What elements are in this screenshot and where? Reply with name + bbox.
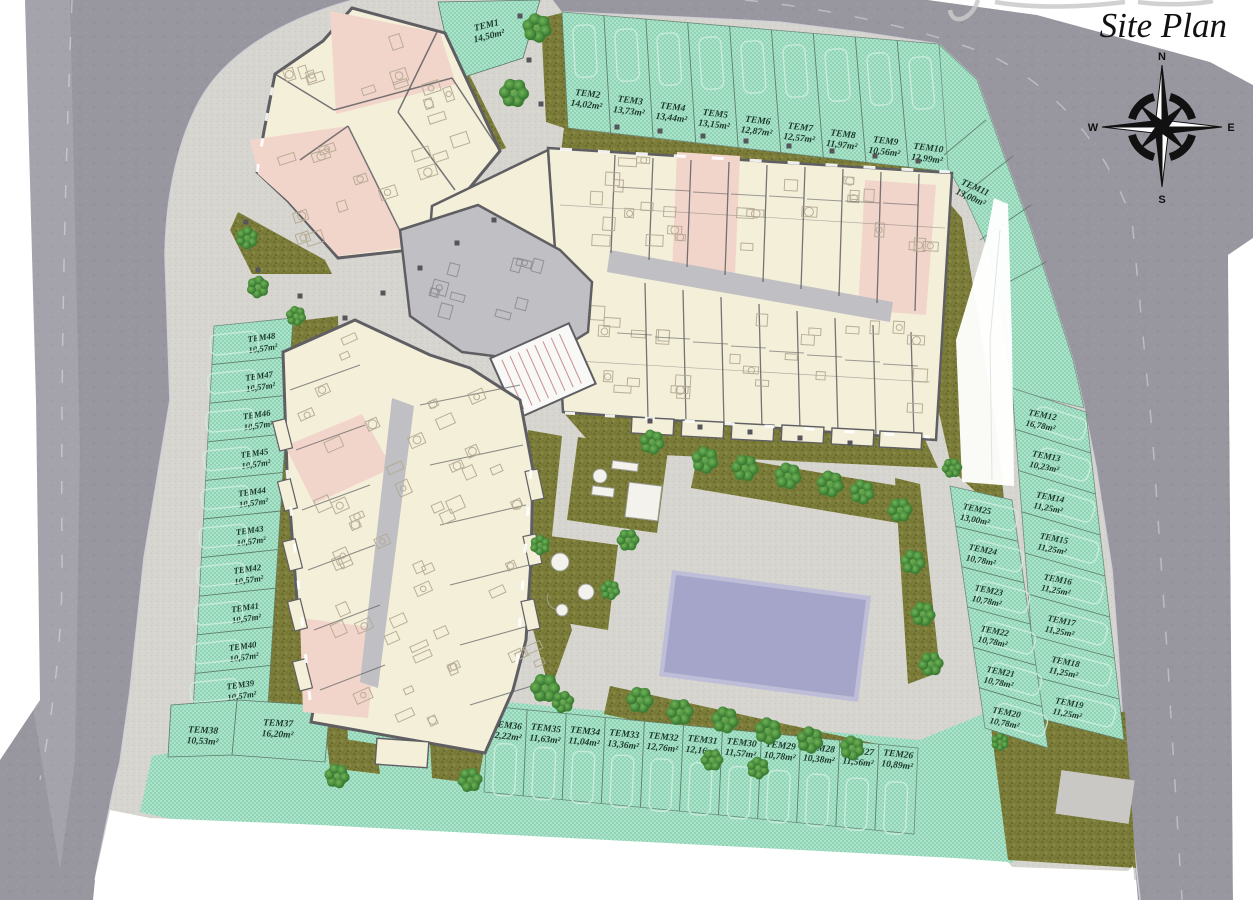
svg-text:TEM38: TEM38 [188,725,219,737]
svg-text:10,53m²: 10,53m² [186,736,219,748]
svg-text:Site Plan: Site Plan [1100,6,1227,45]
svg-text:E: E [1227,122,1234,134]
svg-text:N: N [1158,51,1166,63]
svg-text:16,20m²: 16,20m² [261,729,294,741]
svg-text:S: S [1158,194,1165,206]
svg-text:TEM37: TEM37 [263,718,295,730]
svg-text:W: W [1088,122,1099,134]
